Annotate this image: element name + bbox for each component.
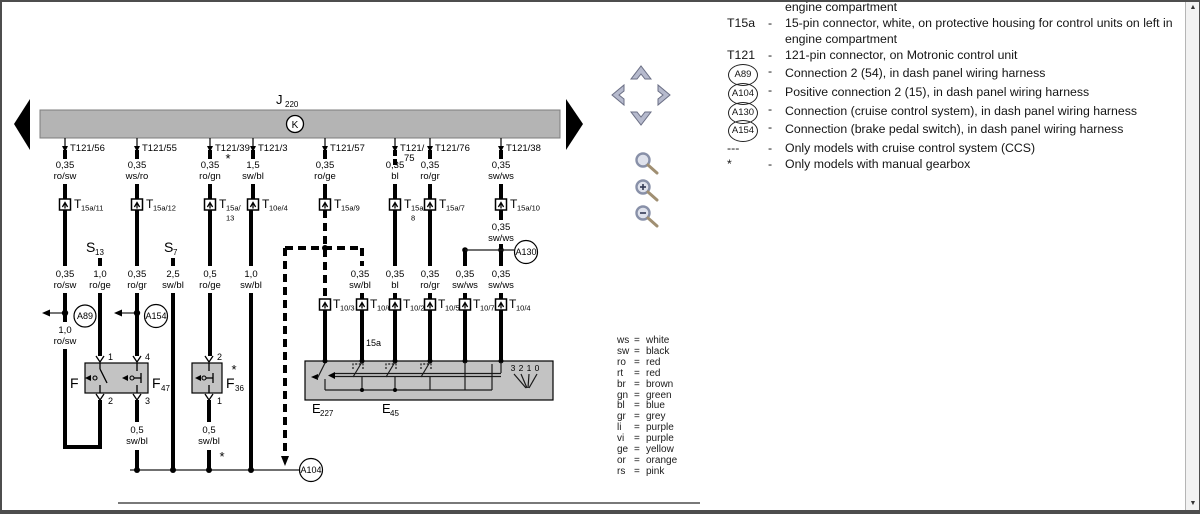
svg-text:ro/gn: ro/gn (199, 171, 221, 182)
svg-text:ro/ge: ro/ge (199, 280, 221, 291)
svg-text:0,35: 0,35 (492, 160, 511, 171)
svg-text:K: K (292, 120, 299, 131)
t15a-connector-row: T15a/11 T15a/12 T15a/ 13 T10e/4 T15a/9 (60, 197, 540, 223)
svg-text:2: 2 (519, 363, 524, 373)
window-border-left (0, 0, 2, 514)
svg-text:1,0: 1,0 (244, 269, 257, 280)
pan-controls (612, 66, 670, 125)
svg-text:7: 7 (173, 248, 178, 257)
svg-text:10e/4: 10e/4 (269, 204, 288, 213)
svg-text:sw/bl: sw/bl (126, 436, 148, 447)
bus-bar-j220: J 220 K (40, 92, 560, 138)
svg-text:ro/sw: ro/sw (54, 336, 77, 347)
svg-text:T121/57: T121/57 (330, 143, 365, 154)
ebox-e227-e45: 3 2 1 0 E227 E45 (305, 359, 553, 419)
manual-gearbox-note: * (231, 362, 236, 377)
svg-text:15a/10: 15a/10 (517, 204, 540, 213)
bottom-wire-labels: 0,35sw/bl 0,35bl 0,35ro/gr 0,35sw/ws 0,3… (349, 269, 514, 291)
f-label: F (70, 375, 79, 391)
svg-text:0,35: 0,35 (386, 269, 405, 280)
terminal-15a-label: 15a (366, 338, 381, 348)
svg-text:0,35: 0,35 (128, 269, 147, 280)
svg-text:1,0: 1,0 (93, 269, 106, 280)
legend-row-ccs: --- - Only models with cruise control sy… (722, 141, 1035, 155)
svg-text:10/4: 10/4 (516, 304, 531, 313)
page-next-arrow[interactable] (566, 99, 583, 150)
svg-text:sw/bl: sw/bl (242, 171, 264, 182)
svg-text:10/7: 10/7 (480, 304, 495, 313)
svg-text:0: 0 (535, 363, 540, 373)
svg-text:15a/11: 15a/11 (81, 204, 103, 213)
svg-text:sw/bl: sw/bl (349, 280, 371, 291)
connector-icon (60, 199, 71, 210)
svg-text:bl: bl (391, 171, 398, 182)
svg-text:ws/ro: ws/ro (125, 171, 149, 182)
svg-text:ro/gr: ro/gr (127, 280, 147, 291)
svg-text:2,5: 2,5 (166, 269, 179, 280)
svg-text:1,5: 1,5 (246, 160, 259, 171)
svg-text:45: 45 (390, 409, 399, 418)
connector-icon (357, 299, 368, 310)
wire-color-legend: ws=white sw=black ro=red rt=red br=brown… (617, 336, 677, 478)
window-border-top (0, 0, 1200, 2)
t10-connector-row: T10/3 T10/6 T10/2 T10/5 T10/7 T10/4 (320, 297, 531, 313)
switch-labels: S13 S7 (86, 239, 178, 257)
junction-a154: A154 (114, 305, 168, 328)
svg-text:0,35: 0,35 (351, 269, 370, 280)
pan-down-button[interactable] (631, 112, 651, 125)
fuse-output-wires: 0,5sw/bl 0,5sw/bl * (126, 400, 224, 470)
svg-text:2: 2 (217, 352, 222, 362)
app-window: J 220 K T121/56 T121/55 T121/39 * T121/3… (0, 0, 1200, 514)
svg-text:8: 8 (411, 214, 415, 223)
svg-text:15a/7: 15a/7 (446, 204, 465, 213)
svg-text:0,5: 0,5 (203, 269, 216, 280)
f47-label: F (152, 375, 161, 391)
connector-icon (205, 199, 216, 210)
t10-to-ebox-wires: 15a (325, 310, 501, 361)
svg-text:15a/: 15a/ (226, 204, 242, 213)
svg-text:1,0: 1,0 (58, 325, 71, 336)
fuse-box-f36: 2 F36 * 1 (192, 352, 244, 406)
connector-icon (320, 199, 331, 210)
svg-text:15a/12: 15a/12 (153, 204, 176, 213)
svg-text:75: 75 (404, 153, 415, 164)
svg-text:3: 3 (145, 396, 150, 406)
legend-row-t15a: T15a - 15-pin connector, white, on prote… (722, 16, 1173, 30)
svg-text:T121/55: T121/55 (142, 143, 177, 154)
svg-text:T121/38: T121/38 (506, 143, 541, 154)
svg-text:0,35: 0,35 (492, 222, 511, 233)
svg-text:2: 2 (108, 396, 113, 406)
ccs-dashed-wires (281, 210, 362, 466)
svg-text:220: 220 (285, 100, 299, 109)
legend-row-manual-gearbox: * - Only models with manual gearbox (722, 157, 970, 171)
svg-text:1: 1 (527, 363, 532, 373)
svg-text:sw/bl: sw/bl (198, 436, 220, 447)
pan-left-button[interactable] (612, 85, 624, 105)
svg-text:0,35: 0,35 (456, 269, 475, 280)
junction-a89: A89 (42, 305, 96, 327)
svg-text:1: 1 (108, 352, 113, 362)
svg-text:13: 13 (226, 214, 234, 223)
svg-text:A104: A104 (300, 465, 321, 475)
pan-right-button[interactable] (658, 85, 670, 105)
svg-text:bl: bl (391, 280, 398, 291)
vertical-scrollbar[interactable]: ▲ ▼ (1185, 2, 1200, 510)
manual-gearbox-note: * (225, 151, 230, 166)
legend-row: engine compartment (722, 0, 897, 14)
legend-row-a154: A154 - Connection (brake pedal switch), … (722, 120, 1123, 142)
svg-text:sw/ws: sw/ws (488, 280, 514, 291)
zoom-area-button[interactable] (637, 154, 658, 174)
svg-text:sw/ws: sw/ws (488, 171, 514, 182)
connector-icon (425, 299, 436, 310)
svg-text:0,35: 0,35 (201, 160, 220, 171)
svg-text:0,5: 0,5 (202, 425, 215, 436)
svg-text:ro/gr: ro/gr (420, 280, 440, 291)
svg-text:T121/39: T121/39 (215, 143, 250, 154)
svg-text:0,5: 0,5 (130, 425, 143, 436)
svg-text:227: 227 (320, 409, 334, 418)
svg-text:0,35: 0,35 (56, 160, 75, 171)
svg-text:0,35: 0,35 (128, 160, 147, 171)
svg-text:A130: A130 (515, 247, 536, 257)
svg-text:1: 1 (217, 396, 222, 406)
svg-text:4: 4 (145, 352, 150, 362)
svg-text:0,35: 0,35 (56, 269, 75, 280)
connector-icon (132, 199, 143, 210)
s7-label: S (164, 239, 173, 255)
fuse-box-f-f47: 1 4 F F47 2 3 (70, 352, 170, 406)
scrollbar-up-icon[interactable]: ▲ (1186, 2, 1200, 14)
scrollbar-down-icon[interactable]: ▼ (1186, 498, 1200, 510)
svg-text:10/3: 10/3 (340, 304, 355, 313)
ground-junction-a104: A104 (130, 459, 323, 482)
svg-text:0,35: 0,35 (421, 269, 440, 280)
a154-circle: A154 (728, 120, 758, 142)
svg-text:36: 36 (235, 384, 244, 393)
page-prev-arrow[interactable] (14, 99, 30, 150)
svg-text:S: S (86, 239, 95, 255)
zoom-in-button[interactable] (637, 181, 658, 201)
svg-text:sw/ws: sw/ws (452, 280, 478, 291)
window-border-bottom (0, 510, 1200, 514)
svg-text:10/5: 10/5 (445, 304, 460, 313)
connector-icon (496, 199, 507, 210)
svg-text:ro/gr: ro/gr (420, 171, 440, 182)
svg-text:sw/bl: sw/bl (162, 280, 184, 291)
svg-text:0,35: 0,35 (316, 160, 335, 171)
svg-text:T121/56: T121/56 (70, 143, 105, 154)
svg-text:A154: A154 (145, 311, 166, 321)
connector-icon (390, 299, 401, 310)
connector-icon (425, 199, 436, 210)
top-wire-labels: 0,35ro/sw 0,35ws/ro 0,35ro/gn 1,5sw/bl 0… (54, 160, 515, 182)
zoom-controls (637, 154, 658, 227)
svg-text:sw/ws: sw/ws (488, 233, 514, 244)
svg-text:13: 13 (95, 248, 104, 257)
pan-up-button[interactable] (631, 66, 651, 79)
svg-text:0,35: 0,35 (492, 269, 511, 280)
svg-text:ro/sw: ro/sw (54, 280, 77, 291)
svg-text:47: 47 (161, 384, 170, 393)
svg-text:T121/3: T121/3 (258, 143, 288, 154)
f36-label: F (226, 375, 235, 391)
svg-text:10/2: 10/2 (410, 304, 425, 313)
connector-icon (320, 299, 331, 310)
svg-text:ro/ge: ro/ge (314, 171, 336, 182)
connector-icon (460, 299, 471, 310)
manual-gearbox-note: * (219, 449, 224, 464)
zoom-out-button[interactable] (637, 207, 658, 227)
bus-label: J (276, 92, 283, 107)
svg-text:sw/bl: sw/bl (240, 280, 262, 291)
svg-text:ro/sw: ro/sw (54, 171, 77, 182)
connector-icon (248, 199, 259, 210)
legend-row-t121: T121 - 121-pin connector, on Motronic co… (722, 48, 1017, 62)
svg-text:T121/76: T121/76 (435, 143, 470, 154)
svg-text:15a/9: 15a/9 (341, 204, 360, 213)
svg-text:ro/ge: ro/ge (89, 280, 111, 291)
svg-text:A89: A89 (77, 311, 93, 321)
connector-icon (390, 199, 401, 210)
connector-icon (496, 299, 507, 310)
svg-text:3: 3 (511, 363, 516, 373)
legend-row: engine compartment (722, 32, 897, 46)
svg-text:0,35: 0,35 (421, 160, 440, 171)
